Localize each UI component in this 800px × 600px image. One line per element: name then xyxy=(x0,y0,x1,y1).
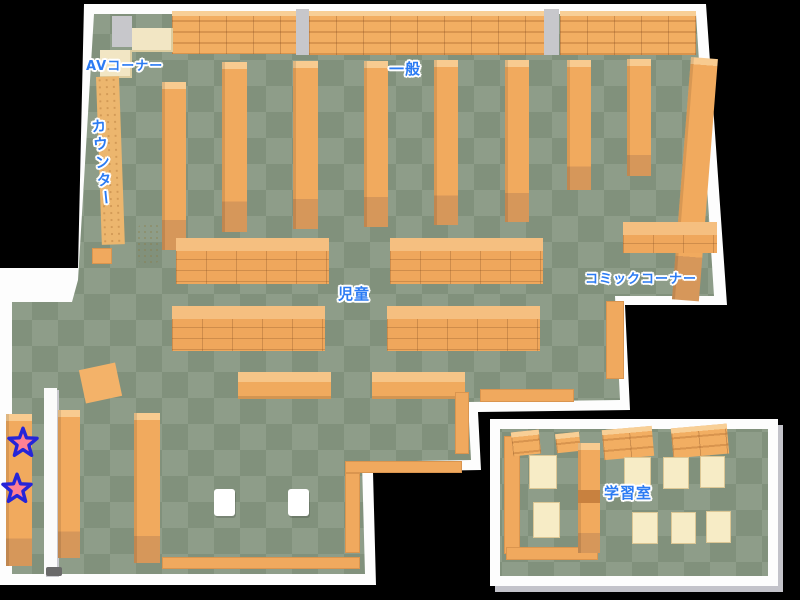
bookshelf-column xyxy=(505,60,529,222)
study-bookshelf xyxy=(511,430,541,457)
bookshelf-column xyxy=(293,61,318,229)
study-desk xyxy=(671,512,696,544)
top-wall-bookshelf xyxy=(560,11,696,55)
divider-gap xyxy=(578,490,600,503)
children-bookshelf xyxy=(390,238,543,284)
label-av-corner: AVコーナー xyxy=(86,55,163,74)
children-bookshelf xyxy=(172,306,325,351)
label-children: 児童 xyxy=(338,283,370,304)
study-desk xyxy=(632,512,658,544)
bookshelf-column xyxy=(364,61,388,227)
entrance-mark xyxy=(46,567,62,576)
study-desk xyxy=(706,511,731,543)
av-shelf xyxy=(132,28,173,52)
display-kiosk xyxy=(136,223,162,263)
alcove-bookshelf xyxy=(58,410,80,558)
label-study-room: 学習室 xyxy=(604,482,652,503)
divider-wall xyxy=(44,388,57,575)
low-shelf xyxy=(238,372,331,399)
wall-shelf xyxy=(345,461,462,473)
star-marker[interactable] xyxy=(0,472,34,506)
pillar xyxy=(544,9,559,55)
wall-shelf xyxy=(480,389,574,402)
pillar xyxy=(296,9,309,55)
bookshelf-column xyxy=(222,62,247,232)
shelf-block xyxy=(92,248,112,264)
study-bookshelf xyxy=(671,424,729,459)
pillar xyxy=(112,16,132,47)
top-wall-bookshelf xyxy=(309,11,544,55)
study-bookshelf xyxy=(602,426,654,460)
library-map: AVコーナー 一般 カウンター 児童 コミックコーナー 学習室 xyxy=(0,0,800,600)
study-desk xyxy=(529,455,557,489)
white-stool xyxy=(288,489,309,516)
wall-shelf xyxy=(345,473,360,553)
wall-shelf xyxy=(455,392,469,454)
study-desk xyxy=(700,456,725,488)
comic-bookshelf xyxy=(623,222,717,253)
star-marker[interactable] xyxy=(6,426,40,460)
wall-shelf xyxy=(606,301,624,379)
children-bookshelf xyxy=(387,306,540,351)
label-comic-corner: コミックコーナー xyxy=(585,268,697,287)
children-bookshelf xyxy=(176,238,329,284)
top-wall-bookshelf xyxy=(172,11,296,54)
white-stool xyxy=(214,489,235,516)
wall-shelf xyxy=(162,557,360,569)
low-shelf xyxy=(372,372,465,399)
label-general: 一般 xyxy=(389,58,421,79)
study-desk xyxy=(663,457,689,489)
bookshelf-column xyxy=(134,413,160,563)
bookshelf-column xyxy=(434,60,458,225)
bookshelf-column xyxy=(567,60,591,190)
study-desk xyxy=(533,502,560,538)
bookshelf-column xyxy=(627,59,651,176)
bookshelf-column xyxy=(162,82,186,250)
